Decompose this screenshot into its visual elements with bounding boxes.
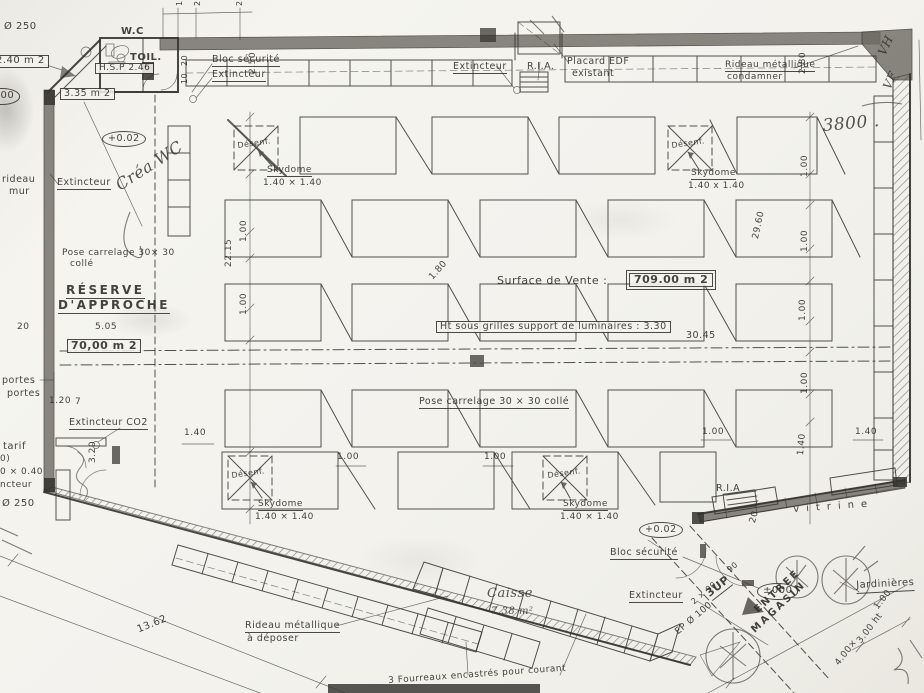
dim-1-00-center-2: 1.00 [484, 453, 506, 462]
skydome-top-left-name: Skydome [267, 166, 312, 177]
level-0-02-bottom: +0.02 [639, 522, 683, 538]
clipped-ncteur: ncteur [0, 481, 32, 490]
desenf-bottom-center: Désenf. [547, 467, 581, 480]
vitrine: vitrine [793, 499, 875, 515]
surface-vente-value: 709.00 m 2 [629, 273, 713, 287]
dim-30-45: 30.45 [686, 331, 716, 341]
extincteur-bottom: Extincteur [629, 591, 683, 603]
dim-1-00-right-4: 1.00 [801, 372, 810, 394]
dim-1-40-vitrine: 1.40 [797, 433, 808, 456]
dim-1-00-center-1: 1.00 [337, 453, 359, 462]
dim-1-00-right-1: 1.00 [801, 155, 810, 177]
tick-20-leader: 20 [181, 55, 189, 66]
desenf-top-right: Désenf. [671, 137, 705, 150]
ht-grilles-box: Ht sous grilles support de luminaires : … [436, 321, 671, 333]
toil-label: TOIL. [130, 53, 162, 64]
hand-vf: VF [881, 70, 900, 92]
skydome-top-right-size: 1.40 x 1.40 [688, 182, 745, 191]
pose-carrelage-left-line2: collé [70, 260, 94, 269]
skydome-bottom-left-name: Skydome [258, 500, 303, 511]
bloc-securite-bottom: Bloc sécurité [610, 548, 678, 560]
dim-2-80-top: 2.80 [799, 52, 808, 74]
surface-vente-label: Surface de Vente : [497, 275, 607, 287]
level-circle-left: 0.00 [0, 88, 20, 105]
skydome-bottom-center-name: Skydome [563, 500, 608, 511]
rideau-deposer-line1: Rideau métallique [245, 621, 340, 633]
clipped-0-40: 0 × 0.40 [0, 468, 43, 477]
dim-1-20: 1.20 [49, 397, 71, 406]
rideau-deposer-line2: à déposer [247, 634, 299, 644]
skydome-top-left-size: 1.40 × 1.40 [263, 179, 322, 188]
wc-label: W.C [121, 27, 144, 38]
dim-4-00: 4.00× [834, 638, 860, 668]
floor-plan-scan: Ø 2502.40 m 20.00W.CTOIL.H.S.P 2.463.35 … [0, 0, 924, 693]
dim-20-left: 20 [17, 323, 29, 332]
dim-1-80: 1.80 [428, 260, 450, 283]
bloc-securite-top: Bloc sécurité [212, 55, 280, 67]
caisse-name: Caisse [487, 587, 533, 601]
ria-bottom: R.I.A [716, 484, 740, 494]
skydome-top-right-name: Skydome [691, 169, 736, 180]
dim-29-60: 29.60 [752, 210, 767, 240]
rideau-mur-line2: mur [9, 187, 30, 197]
reserve-line1: RÉSERVE [66, 284, 145, 299]
level-0-02-top: +0.02 [102, 131, 146, 147]
desenf-top-left: Désenf. [237, 137, 271, 150]
clipped-paren: 0) [0, 455, 10, 464]
fourreaux-note: 3 Fourreaux encastrés pour courant [388, 665, 566, 687]
rideau-mur-line1: rideau [2, 175, 35, 185]
dia-250-bottom: Ø 250 [2, 499, 35, 510]
dim-1-40-right: 1.40 [855, 428, 877, 437]
tarif-clipped: tarif [3, 442, 26, 453]
extincteur-co2: Extincteur CO2 [69, 418, 148, 430]
extincteur-top-mid: Extincteur [453, 62, 507, 74]
dim-1-00-right-2: 1.00 [801, 230, 810, 252]
ria-top: R.I.A. [527, 62, 554, 72]
hand-3800: 3800 . [822, 113, 880, 136]
rideau-condamner-line2: condamner [727, 73, 783, 82]
dim-22-15: 22.15 [225, 239, 234, 267]
placard-edf-line1: Placard EDF [567, 57, 629, 67]
dim-3-20: 3.20 [89, 441, 98, 463]
dim-13-62: 13.62 [136, 614, 169, 635]
dim-2-50: 2.50 [249, 52, 258, 74]
placard-edf-line2: existant [572, 69, 614, 79]
dia-250-top: Ø 250 [4, 22, 37, 33]
tick-10-top: 10 [176, 0, 184, 6]
hand-vh: VH [876, 34, 896, 58]
hsp-box: H.S.P 2.46 [95, 63, 154, 74]
extincteur-left: Extincteur [57, 178, 111, 190]
caisse-area: 7.38 m² [491, 607, 533, 618]
desenf-bottom-left: Désenf. [231, 467, 265, 480]
dim-3-00-ht: 3.00 ht [856, 612, 885, 646]
dim-1-00-right-3: 1.00 [799, 299, 808, 321]
skydome-bottom-left-size: 1.40 × 1.40 [255, 513, 314, 522]
dim-7: 7 [75, 398, 81, 407]
pose-carrelage-left-line1: Pose carrelage 30× 30 [62, 249, 175, 258]
dim-1-00-left-1: 1.00 [240, 220, 249, 242]
tick-10-leader: 10 [181, 73, 189, 84]
reserve-line2: D'APPROCHE [58, 299, 170, 314]
dim-90: 90 [726, 561, 740, 575]
area-3-35-box: 3.35 m 2 [60, 88, 115, 100]
ep-100: EP Ø 100 [674, 601, 715, 637]
portes-line1: portes [2, 376, 35, 386]
tick-20-top-b: 20 [236, 0, 244, 6]
dim-20-vitrine: 20 [749, 510, 761, 524]
portes-line2: portes [7, 389, 40, 399]
tick-20-top-a: 20 [194, 0, 202, 6]
dim-5-05: 5.05 [95, 323, 117, 332]
dim-1-00-left-2: 1.00 [240, 293, 249, 315]
skydome-bottom-center-size: 1.40 × 1.40 [560, 513, 619, 522]
pose-carrelage-center: Pose carrelage 30 × 30 collé [419, 397, 569, 409]
dim-1-40-left: 1.40 [184, 429, 206, 438]
labels-layer: Ø 2502.40 m 20.00W.CTOIL.H.S.P 2.463.35 … [0, 0, 924, 693]
area-70-box: 70,00 m 2 [67, 339, 141, 353]
dim-1-00-center-3: 1.00 [702, 428, 724, 437]
area-2-40-box: 2.40 m 2 [0, 55, 49, 68]
